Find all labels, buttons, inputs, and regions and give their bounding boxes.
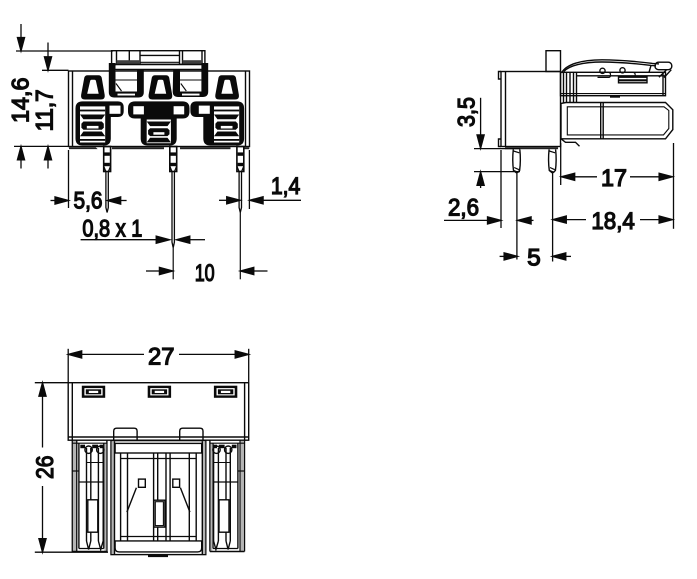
svg-text:5,6: 5,6 [74, 187, 103, 214]
svg-text:0,8 x 1: 0,8 x 1 [82, 215, 142, 242]
svg-text:11,7: 11,7 [31, 89, 58, 131]
svg-text:18,4: 18,4 [591, 208, 635, 235]
svg-text:17: 17 [601, 165, 627, 192]
svg-text:1,4: 1,4 [271, 173, 301, 200]
svg-text:27: 27 [148, 344, 175, 371]
svg-text:14,6: 14,6 [7, 78, 34, 124]
svg-text:2,6: 2,6 [448, 194, 479, 221]
svg-text:10: 10 [195, 260, 215, 287]
svg-text:26: 26 [32, 455, 59, 479]
svg-text:3,5: 3,5 [453, 97, 480, 127]
svg-text:5: 5 [527, 245, 541, 272]
